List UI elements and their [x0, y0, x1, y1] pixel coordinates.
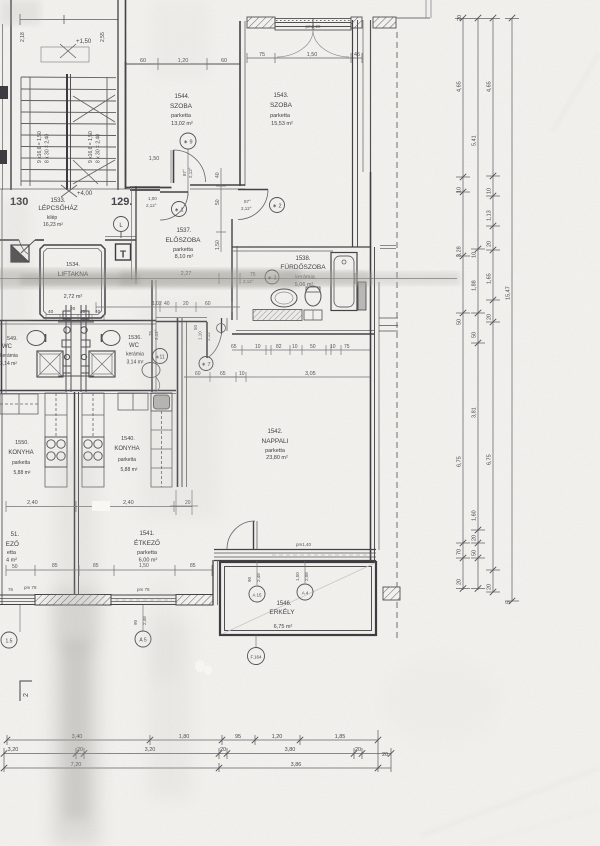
svg-text:1,85: 1,85	[335, 734, 346, 740]
svg-text:A 4: A 4	[302, 591, 309, 596]
svg-text:50: 50	[472, 550, 478, 556]
svg-text:15,47: 15,47	[506, 286, 512, 300]
svg-text:10: 10	[255, 344, 261, 350]
svg-text:65: 65	[220, 371, 226, 377]
svg-text:1,13: 1,13	[487, 210, 493, 221]
svg-text:90: 90	[133, 619, 138, 625]
svg-text:129.: 129.	[111, 196, 132, 208]
svg-text:1,60: 1,60	[472, 510, 478, 521]
svg-text:1,50: 1,50	[307, 52, 318, 58]
svg-text:1540.: 1540.	[121, 436, 135, 442]
svg-text:6,75: 6,75	[487, 454, 493, 465]
svg-text:65: 65	[231, 344, 237, 350]
svg-text:SZOBA: SZOBA	[270, 102, 293, 109]
svg-text:8,10 m²: 8,10 m²	[175, 254, 194, 260]
svg-text:2,40: 2,40	[123, 500, 134, 506]
svg-text:1542.: 1542.	[267, 429, 282, 435]
svg-text:40: 40	[48, 309, 54, 315]
svg-text:1550.: 1550.	[15, 440, 29, 446]
svg-text:20: 20	[487, 241, 493, 247]
svg-text:LÉPCSŐHÁZ: LÉPCSŐHÁZ	[38, 203, 77, 212]
svg-text:3,80: 3,80	[285, 747, 296, 753]
svg-text:13,02 m²: 13,02 m²	[171, 121, 193, 127]
svg-text:1.5: 1.5	[6, 639, 13, 645]
svg-text:2,12°: 2,12°	[188, 167, 193, 178]
svg-text:etta: etta	[7, 550, 17, 556]
svg-text:50: 50	[457, 319, 463, 325]
svg-text:pm 78: pm 78	[24, 585, 37, 590]
svg-text:parketta: parketta	[265, 448, 286, 454]
svg-text:20: 20	[220, 747, 226, 753]
svg-text:1546.: 1546.	[276, 601, 291, 607]
svg-text:60: 60	[140, 58, 146, 64]
svg-text:1537.: 1537.	[176, 228, 191, 234]
svg-text:parketta: parketta	[118, 457, 136, 463]
svg-text:9 x16,6 = 1,50: 9 x16,6 = 1,50	[88, 131, 94, 163]
svg-text:3,14 m²: 3,14 m²	[0, 361, 17, 367]
svg-text:20: 20	[487, 314, 493, 320]
svg-text:kerámia: kerámia	[0, 353, 18, 359]
svg-text:T: T	[120, 250, 126, 261]
svg-text:50: 50	[12, 564, 18, 570]
svg-text:2,12°: 2,12°	[146, 203, 157, 208]
svg-text:20: 20	[457, 15, 463, 21]
svg-text:parketta: parketta	[173, 247, 194, 253]
svg-text:20: 20	[457, 579, 463, 585]
svg-text:10: 10	[330, 344, 336, 350]
svg-text:2,72 m²: 2,72 m²	[64, 294, 83, 300]
svg-text:1544.: 1544.	[174, 94, 189, 100]
svg-text:ÉTKEZŐ: ÉTKEZŐ	[134, 538, 160, 547]
svg-text:23,80 m²: 23,80 m²	[266, 455, 288, 461]
svg-text:9 x16,6 = 1,50: 9 x16,6 = 1,50	[37, 131, 43, 163]
svg-text:F.164: F.164	[250, 655, 262, 660]
svg-text:+4,00: +4,00	[77, 191, 93, 197]
svg-text:KONYHA: KONYHA	[8, 450, 33, 456]
svg-text:90: 90	[247, 576, 252, 582]
svg-text:3,81: 3,81	[472, 407, 478, 418]
svg-text:SZOBA: SZOBA	[170, 103, 193, 110]
svg-text:20: 20	[382, 752, 388, 758]
svg-text:2,18: 2,18	[20, 32, 26, 42]
svg-text:2: 2	[23, 693, 30, 697]
svg-text:70: 70	[457, 549, 463, 555]
svg-text:5,41: 5,41	[472, 135, 478, 146]
svg-text:6,75: 6,75	[457, 456, 463, 467]
svg-text:pm1,40: pm1,40	[296, 542, 312, 547]
svg-text:1,50: 1,50	[295, 572, 300, 581]
svg-text:WC: WC	[2, 344, 13, 350]
svg-text:75: 75	[259, 52, 265, 58]
svg-text:20: 20	[355, 747, 361, 753]
svg-text:87°: 87°	[182, 169, 187, 176]
svg-text:2,48: 2,48	[142, 616, 147, 625]
svg-text:50: 50	[310, 344, 316, 350]
svg-text:4,65: 4,65	[487, 81, 493, 92]
svg-text:20: 20	[487, 584, 493, 590]
svg-text:51.: 51.	[11, 532, 20, 538]
svg-text:1,65: 1,65	[487, 273, 493, 284]
svg-text:5,88 m²: 5,88 m²	[14, 470, 31, 476]
svg-text:1541.: 1541.	[139, 531, 154, 537]
svg-text:+1,50: +1,50	[76, 39, 92, 45]
svg-text:1543.: 1543.	[273, 93, 288, 99]
svg-text:ERKÉLY: ERKÉLY	[269, 607, 295, 616]
svg-text:4,65: 4,65	[457, 81, 463, 92]
svg-text:A 15: A 15	[252, 593, 262, 598]
svg-text:40: 40	[215, 172, 221, 178]
svg-text:parketta: parketta	[171, 113, 192, 119]
svg-text:3,05: 3,05	[305, 371, 316, 377]
svg-text:10: 10	[239, 371, 245, 377]
svg-text:1,20: 1,20	[272, 734, 283, 740]
svg-text:∗ 2: ∗ 2	[272, 204, 281, 210]
svg-text:pm2,20: pm2,20	[305, 24, 321, 29]
svg-text:1534.: 1534.	[66, 262, 80, 268]
svg-text:4 m²: 4 m²	[6, 558, 17, 564]
svg-text:parketta: parketta	[137, 550, 158, 556]
svg-text:6,75 m²: 6,75 m²	[274, 624, 293, 630]
svg-text:1,50: 1,50	[149, 156, 160, 162]
svg-text:parketta: parketta	[270, 113, 291, 119]
svg-text:10: 10	[487, 188, 493, 194]
svg-text:2,40: 2,40	[27, 500, 38, 506]
svg-text:2,48: 2,48	[256, 573, 261, 582]
svg-text:1,50: 1,50	[215, 240, 221, 250]
svg-text:A 5: A 5	[139, 638, 146, 644]
svg-text:EZŐ: EZŐ	[6, 539, 19, 548]
svg-text:5,88 m²: 5,88 m²	[121, 467, 138, 473]
svg-text:1538.: 1538.	[295, 256, 310, 262]
svg-text:pm 78: pm 78	[137, 587, 150, 592]
svg-text:16,23 m²: 16,23 m²	[43, 222, 63, 228]
svg-text:8 x 30 = 2,40: 8 x 30 = 2,40	[45, 134, 51, 163]
svg-text:60: 60	[221, 58, 227, 64]
svg-text:1,00: 1,00	[148, 196, 157, 201]
svg-text:parketta: parketta	[12, 460, 30, 466]
svg-text:NAPPALI: NAPPALI	[262, 438, 289, 445]
svg-text:ELŐSZOBA: ELŐSZOBA	[165, 235, 201, 244]
svg-text:1,88: 1,88	[472, 280, 478, 291]
svg-text:3,86: 3,86	[291, 762, 302, 768]
svg-text:87°: 87°	[244, 199, 251, 204]
svg-text:75: 75	[344, 344, 350, 350]
svg-text:8 x 30 = 2,40: 8 x 30 = 2,40	[96, 134, 102, 163]
svg-text:1,50: 1,50	[139, 563, 149, 569]
svg-text:50: 50	[472, 332, 478, 338]
svg-text:85: 85	[190, 563, 196, 569]
svg-text:10: 10	[292, 344, 298, 350]
svg-text:∗ 9: ∗ 9	[183, 140, 192, 146]
svg-text:76: 76	[8, 587, 14, 592]
svg-text:3,20: 3,20	[8, 747, 19, 753]
svg-text:kilép: kilép	[47, 215, 58, 221]
svg-text:82: 82	[276, 344, 282, 350]
svg-text:KONYHA: KONYHA	[114, 446, 139, 452]
svg-text:20: 20	[472, 535, 478, 541]
svg-text:3,28: 3,28	[457, 246, 463, 257]
svg-text:15,53 m²: 15,53 m²	[271, 121, 293, 127]
svg-text:WC: WC	[129, 343, 140, 349]
svg-text:95: 95	[235, 734, 241, 740]
svg-text:1533.: 1533.	[50, 198, 65, 204]
svg-text:2,08: 2,08	[304, 572, 309, 581]
svg-text:∗ 1: ∗ 1	[174, 208, 183, 214]
svg-text:5: 5	[506, 601, 512, 604]
svg-text:50: 50	[215, 199, 221, 205]
svg-text:2,12°: 2,12°	[241, 206, 252, 211]
svg-text:2,55: 2,55	[100, 32, 106, 42]
svg-text:10: 10	[457, 187, 463, 193]
svg-text:10: 10	[472, 252, 478, 258]
